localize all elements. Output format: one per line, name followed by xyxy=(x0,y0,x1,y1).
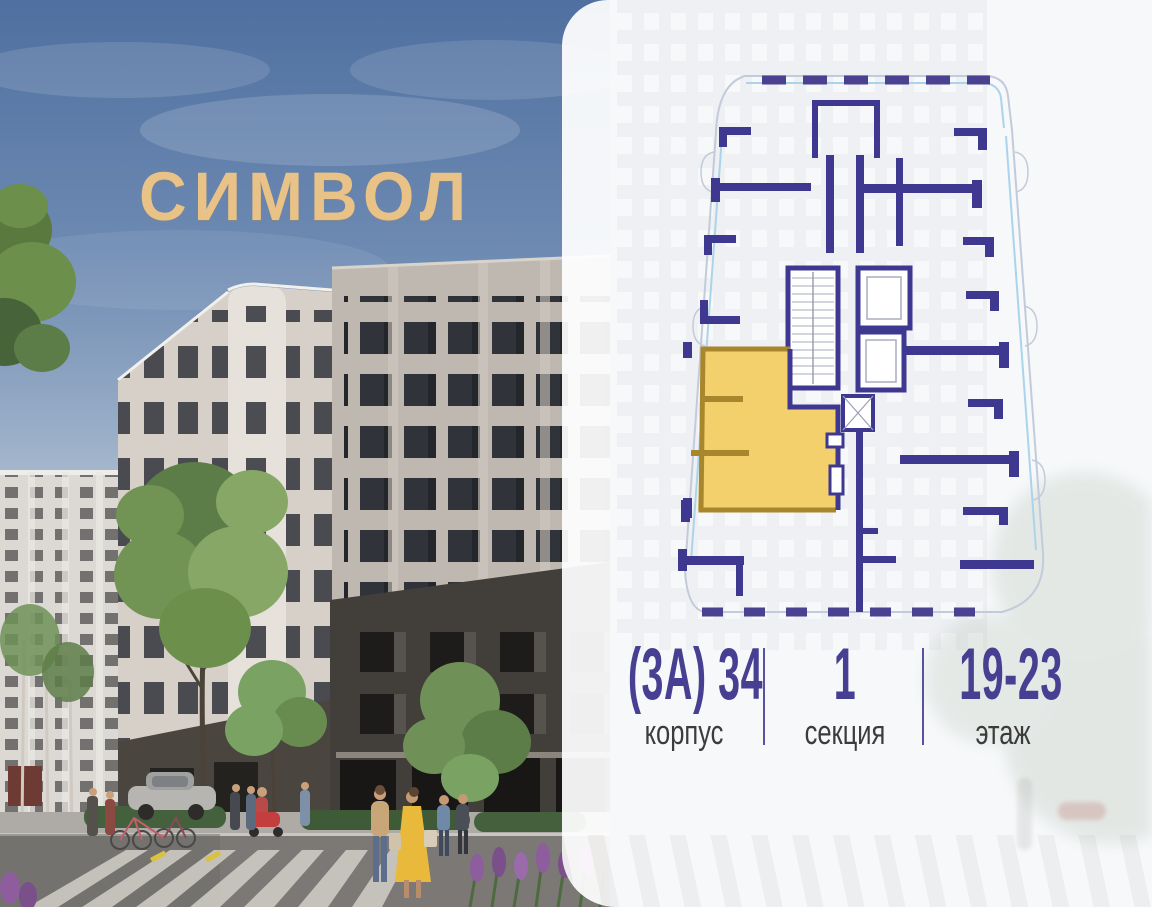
stair-shaft xyxy=(788,268,838,388)
service-shaft xyxy=(843,396,873,430)
watermark-person xyxy=(1017,778,1032,850)
apartment-card[interactable]: (3А) 34 корпус 1 секция 19-23 этаж xyxy=(562,0,1152,907)
elevator-shafts xyxy=(858,268,910,390)
shopping-bag xyxy=(389,834,401,850)
watermark-street xyxy=(562,835,1152,907)
red-storefront xyxy=(8,766,42,806)
watermark-car xyxy=(1058,802,1106,820)
apartment-inner-wall xyxy=(703,396,743,402)
shopping-bag xyxy=(424,830,437,847)
floors-value: 19-23 xyxy=(959,645,1046,705)
plan-core xyxy=(788,100,910,612)
section-value: 1 xyxy=(803,645,886,705)
listing-image: СИМВОЛ xyxy=(0,0,1152,907)
building-photo xyxy=(0,0,610,907)
floors-label: этаж xyxy=(942,717,1064,749)
floor-plan xyxy=(650,45,1120,635)
stats-divider xyxy=(763,648,765,745)
apartment-niche xyxy=(827,434,843,447)
section-label: секция xyxy=(787,717,903,749)
project-logo: СИМВОЛ xyxy=(126,154,486,237)
stat-floors: 19-23 этаж xyxy=(922,645,1084,749)
stat-section: 1 секция xyxy=(768,645,922,749)
corpus-value: (3А) 34 xyxy=(628,645,740,705)
corpus-label: корпус xyxy=(606,717,762,749)
stat-corpus: (3А) 34 корпус xyxy=(580,645,788,749)
apartment-niche xyxy=(830,466,843,494)
apartment-inner-wall xyxy=(691,450,749,456)
stats-row: (3А) 34 корпус 1 секция 19-23 этаж xyxy=(562,645,1152,755)
